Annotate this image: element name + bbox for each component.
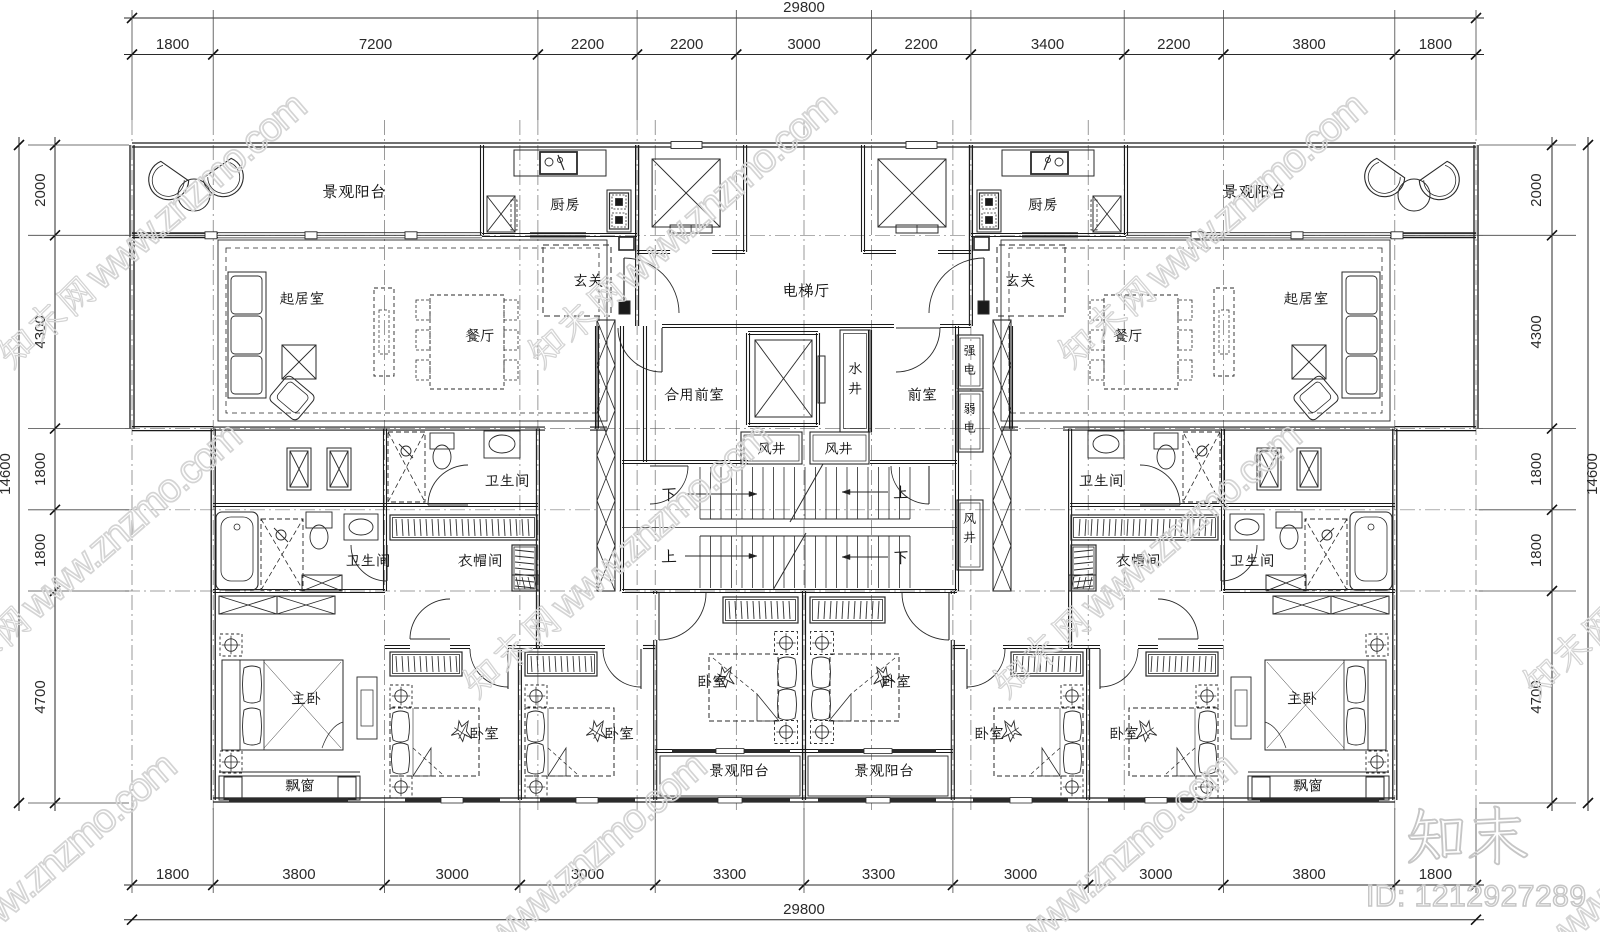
svg-text:1800: 1800 — [156, 866, 189, 883]
svg-text:1800: 1800 — [1528, 534, 1545, 567]
svg-text:3800: 3800 — [282, 866, 315, 883]
svg-text:2200: 2200 — [571, 36, 604, 53]
svg-text:3000: 3000 — [1004, 866, 1037, 883]
svg-text:7200: 7200 — [359, 36, 392, 53]
svg-text:4300: 4300 — [1528, 315, 1545, 348]
svg-text:2200: 2200 — [905, 36, 938, 53]
svg-text:4700: 4700 — [32, 680, 49, 713]
svg-text:2200: 2200 — [1157, 36, 1190, 53]
svg-text:2000: 2000 — [1528, 173, 1545, 206]
svg-text:2200: 2200 — [670, 36, 703, 53]
svg-text:3000: 3000 — [1139, 866, 1172, 883]
svg-text:14600: 14600 — [0, 453, 14, 495]
svg-text:3300: 3300 — [862, 866, 895, 883]
svg-text:ID: 1212927289: ID: 1212927289 — [1366, 880, 1587, 913]
svg-text:1800: 1800 — [1419, 36, 1452, 53]
svg-text:1800: 1800 — [32, 453, 49, 486]
svg-text:29800: 29800 — [783, 901, 825, 918]
svg-text:1800: 1800 — [156, 36, 189, 53]
svg-text:3400: 3400 — [1031, 36, 1064, 53]
svg-text:29800: 29800 — [783, 0, 825, 16]
svg-text:3300: 3300 — [713, 866, 746, 883]
svg-text:3800: 3800 — [1292, 866, 1325, 883]
svg-text:1800: 1800 — [32, 534, 49, 567]
svg-text:2000: 2000 — [32, 173, 49, 206]
svg-text:1800: 1800 — [1528, 453, 1545, 486]
svg-text:3000: 3000 — [787, 36, 820, 53]
svg-text:14600: 14600 — [1584, 453, 1600, 495]
svg-text:3000: 3000 — [436, 866, 469, 883]
svg-text:3800: 3800 — [1292, 36, 1325, 53]
